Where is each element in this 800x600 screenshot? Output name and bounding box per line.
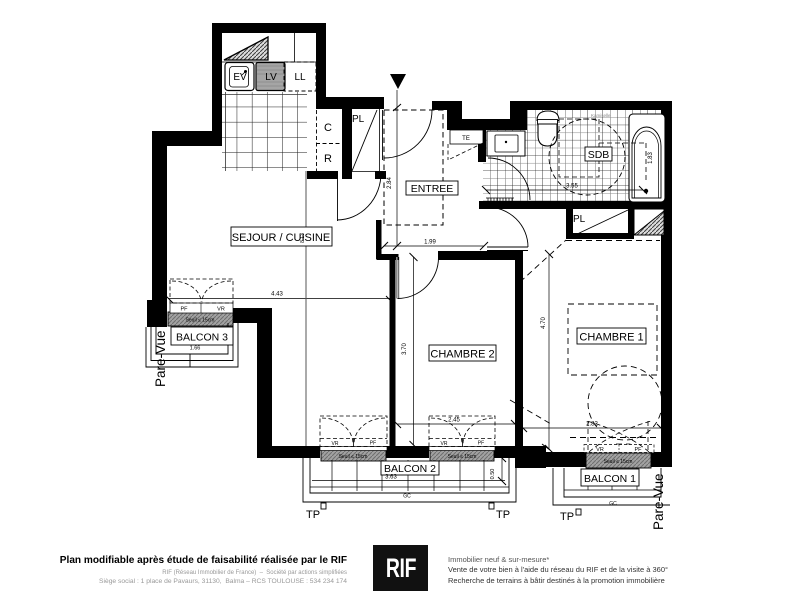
svg-text:VR: VR <box>596 447 604 453</box>
svg-text:SDB: SDB <box>588 149 610 161</box>
svg-text:PL: PL <box>352 114 365 125</box>
svg-text:PF: PF <box>634 447 642 453</box>
svg-text:LL: LL <box>294 72 306 83</box>
svg-text:Pare-Vue: Pare-Vue <box>651 473 666 530</box>
svg-text:PL: PL <box>573 214 586 225</box>
svg-text:C: C <box>324 122 332 134</box>
svg-text:VR: VR <box>217 307 225 313</box>
svg-text:4.70: 4.70 <box>541 317 547 329</box>
svg-text:PF: PF <box>180 307 188 313</box>
svg-text:BALCON 3: BALCON 3 <box>176 332 228 344</box>
svg-text:1.99: 1.99 <box>424 240 436 246</box>
svg-text:2.84: 2.84 <box>387 177 393 189</box>
svg-text:CHAMBRE 1: CHAMBRE 1 <box>579 332 643 344</box>
svg-text:Seuil ≤ 15cm: Seuil ≤ 15cm <box>604 459 633 465</box>
svg-text:1.83: 1.83 <box>648 152 654 164</box>
svg-text:TP: TP <box>560 511 574 523</box>
svg-text:GC: GC <box>403 494 411 500</box>
svg-text:TE: TE <box>462 136 470 142</box>
svg-text:1.66: 1.66 <box>190 346 201 352</box>
svg-text:2.45: 2.45 <box>448 418 460 424</box>
svg-text:PF: PF <box>478 441 484 447</box>
svg-text:SEJOUR / CUISINE: SEJOUR / CUISINE <box>232 232 330 244</box>
svg-text:3.63: 3.63 <box>385 475 397 481</box>
svg-text:8.13: 8.13 <box>300 233 306 243</box>
svg-text:ENTREE: ENTREE <box>411 183 454 195</box>
svg-text:EV: EV <box>233 72 247 83</box>
svg-text:3.70: 3.70 <box>402 343 408 355</box>
svg-text:Seuil ≤ 15cm: Seuil ≤ 15cm <box>448 454 477 460</box>
svg-text:BALCON 2: BALCON 2 <box>384 463 436 475</box>
svg-text:0.50: 0.50 <box>490 469 496 480</box>
svg-text:Pare-Vue: Pare-Vue <box>153 330 168 387</box>
svg-text:R: R <box>324 153 332 165</box>
svg-text:GC: GC <box>609 501 617 507</box>
svg-text:VR: VR <box>332 441 339 447</box>
svg-text:Kamiselle: Kamiselle <box>591 113 611 118</box>
svg-text:Seuil ≤ 15cm: Seuil ≤ 15cm <box>186 318 215 324</box>
svg-text:LV: LV <box>265 72 277 83</box>
svg-text:TP: TP <box>306 509 320 521</box>
svg-text:3.55: 3.55 <box>566 184 578 190</box>
svg-text:TP: TP <box>496 509 510 521</box>
svg-text:VR: VR <box>441 441 448 447</box>
svg-text:CHAMBRE 2: CHAMBRE 2 <box>430 349 494 361</box>
svg-text:BALCON 1: BALCON 1 <box>584 473 636 485</box>
svg-text:PF: PF <box>370 441 376 447</box>
svg-text:2.82: 2.82 <box>586 422 598 428</box>
svg-text:Seuil ≤ 15cm: Seuil ≤ 15cm <box>339 454 368 460</box>
svg-text:4.43: 4.43 <box>271 292 283 298</box>
